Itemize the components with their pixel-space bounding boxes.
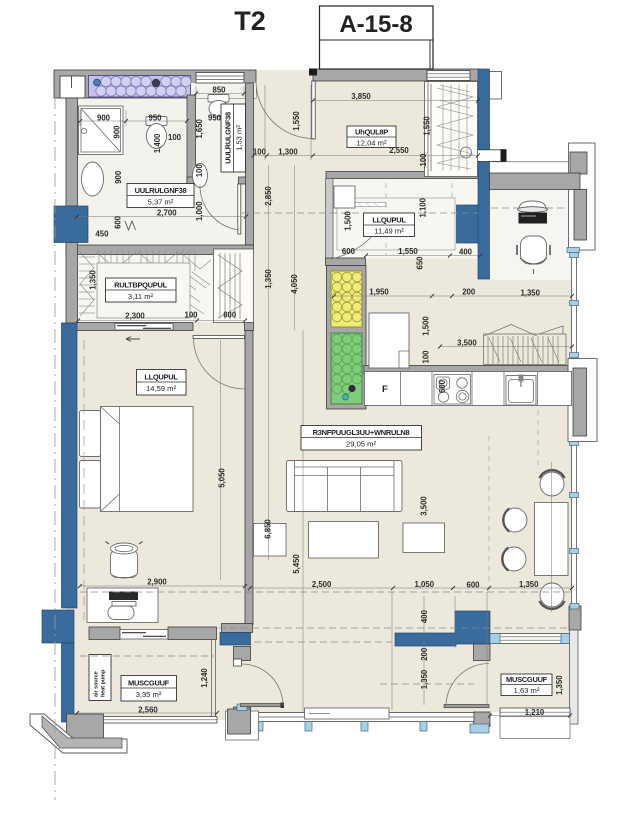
svg-text:100: 100 xyxy=(421,350,430,364)
svg-text:1,350: 1,350 xyxy=(420,669,429,689)
svg-text:5,450: 5,450 xyxy=(292,554,301,574)
svg-text:5,37 m²: 5,37 m² xyxy=(148,198,174,207)
svg-text:1,240: 1,240 xyxy=(200,668,209,688)
svg-text:650: 650 xyxy=(415,256,424,270)
svg-text:100: 100 xyxy=(253,148,267,157)
svg-text:100: 100 xyxy=(195,164,204,178)
svg-text:11,49 m²: 11,49 m² xyxy=(374,227,404,236)
svg-text:6,850: 6,850 xyxy=(264,519,273,539)
svg-text:850: 850 xyxy=(212,86,226,95)
svg-text:1,350: 1,350 xyxy=(519,580,539,589)
svg-text:950: 950 xyxy=(148,114,162,123)
svg-text:1,400: 1,400 xyxy=(153,133,162,153)
svg-text:100: 100 xyxy=(419,153,428,167)
svg-text:5,050: 5,050 xyxy=(218,468,227,488)
svg-text:UULRULGNF38: UULRULGNF38 xyxy=(135,186,187,195)
svg-text:1,350: 1,350 xyxy=(264,269,273,289)
svg-text:LLQUPUL: LLQUPUL xyxy=(372,216,406,225)
svg-text:1,500: 1,500 xyxy=(421,316,430,336)
svg-text:1,650: 1,650 xyxy=(195,118,204,138)
svg-text:950: 950 xyxy=(208,114,222,123)
svg-text:600: 600 xyxy=(438,379,447,393)
svg-text:3,35 m²: 3,35 m² xyxy=(136,690,162,699)
svg-text:R3NFPUUGL3UU+WNRULN8: R3NFPUUGL3UU+WNRULN8 xyxy=(313,428,410,437)
svg-text:UhQUL8P: UhQUL8P xyxy=(355,128,388,137)
svg-text:14,59 m²: 14,59 m² xyxy=(146,384,176,393)
svg-text:4,050: 4,050 xyxy=(290,274,299,294)
svg-text:3,500: 3,500 xyxy=(420,496,429,516)
svg-text:heat pump: heat pump xyxy=(101,669,107,697)
svg-text:1,550: 1,550 xyxy=(292,111,301,131)
svg-text:air source: air source xyxy=(94,671,100,697)
svg-text:A-15-8: A-15-8 xyxy=(339,11,412,38)
svg-text:1,550: 1,550 xyxy=(398,247,418,256)
svg-text:600: 600 xyxy=(342,247,356,256)
svg-text:T2: T2 xyxy=(234,6,266,36)
svg-text:900: 900 xyxy=(113,125,122,139)
svg-text:450: 450 xyxy=(95,230,109,239)
svg-text:1,050: 1,050 xyxy=(415,580,435,589)
svg-text:1,550: 1,550 xyxy=(423,116,432,136)
svg-text:UULRULGNF38: UULRULGNF38 xyxy=(224,112,233,164)
svg-text:1,350: 1,350 xyxy=(555,675,564,695)
svg-text:2,850: 2,850 xyxy=(264,186,273,206)
svg-text:3,850: 3,850 xyxy=(351,92,371,101)
svg-text:2,500: 2,500 xyxy=(312,580,332,589)
svg-text:400: 400 xyxy=(420,609,429,623)
svg-text:900: 900 xyxy=(97,114,111,123)
svg-text:2,560: 2,560 xyxy=(138,706,158,715)
svg-text:1,53 m²: 1,53 m² xyxy=(235,125,244,151)
svg-text:1,500: 1,500 xyxy=(344,211,353,231)
svg-text:100: 100 xyxy=(184,311,198,320)
svg-text:1,210: 1,210 xyxy=(525,708,545,717)
svg-text:600: 600 xyxy=(466,580,480,589)
svg-text:2,900: 2,900 xyxy=(147,578,167,587)
svg-text:12,04 m²: 12,04 m² xyxy=(357,139,387,148)
svg-text:MUSCGUUF: MUSCGUUF xyxy=(506,675,548,684)
svg-text:2,300: 2,300 xyxy=(125,312,145,321)
svg-text:200: 200 xyxy=(420,647,429,661)
svg-text:900: 900 xyxy=(114,170,123,184)
svg-text:600: 600 xyxy=(114,215,123,229)
svg-text:1,300: 1,300 xyxy=(278,148,298,157)
svg-text:29,05 m²: 29,05 m² xyxy=(346,440,376,449)
svg-text:MUSCGUUF: MUSCGUUF xyxy=(128,679,170,688)
svg-text:1,950: 1,950 xyxy=(369,288,389,297)
svg-text:400: 400 xyxy=(459,248,473,257)
svg-text:1,350: 1,350 xyxy=(520,289,540,298)
svg-text:1,100: 1,100 xyxy=(419,197,428,217)
svg-text:1,350: 1,350 xyxy=(89,270,98,290)
svg-text:LLQUPUL: LLQUPUL xyxy=(144,373,178,382)
svg-text:3,500: 3,500 xyxy=(457,339,477,348)
svg-text:F: F xyxy=(382,384,388,395)
svg-text:2,700: 2,700 xyxy=(157,209,177,218)
svg-text:3,11 m²: 3,11 m² xyxy=(128,292,154,301)
svg-text:1,000: 1,000 xyxy=(195,201,204,221)
svg-text:100: 100 xyxy=(168,133,182,142)
svg-text:1,63 m²: 1,63 m² xyxy=(514,686,540,695)
svg-text:600: 600 xyxy=(223,311,237,320)
svg-text:RULTBPQUPUL: RULTBPQUPUL xyxy=(114,281,168,290)
svg-text:200: 200 xyxy=(462,288,476,297)
